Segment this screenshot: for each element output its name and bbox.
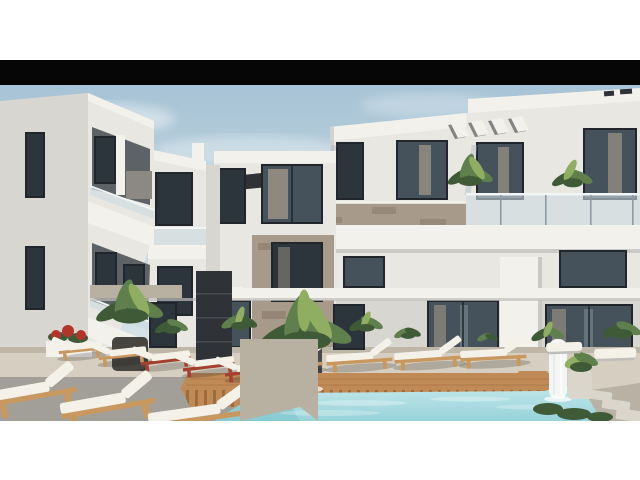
window xyxy=(337,143,363,199)
window xyxy=(219,169,245,223)
window xyxy=(26,133,44,197)
balcony-glass-railing xyxy=(150,227,206,245)
window xyxy=(95,137,115,183)
window xyxy=(26,247,44,309)
balcony-fascia xyxy=(330,225,640,249)
screenshot-root xyxy=(0,0,640,480)
window xyxy=(344,257,384,287)
balcony-box xyxy=(126,171,152,199)
balcony-glass-railing xyxy=(466,193,640,225)
parapet xyxy=(214,151,336,163)
rooftop-vent xyxy=(604,91,614,97)
deck-bench xyxy=(518,371,548,378)
sun-lounger xyxy=(546,342,582,355)
stone-step xyxy=(240,339,318,421)
rooftop-vent xyxy=(620,89,632,95)
window xyxy=(560,251,626,287)
letterbox-bar xyxy=(0,60,640,85)
slate-accent-wall xyxy=(196,271,232,363)
window xyxy=(262,165,322,223)
roof-stack xyxy=(192,143,204,161)
sun-lounger xyxy=(594,348,636,362)
balcony-column xyxy=(116,135,125,195)
window xyxy=(156,173,192,225)
courtyard-render-photo xyxy=(0,85,640,421)
